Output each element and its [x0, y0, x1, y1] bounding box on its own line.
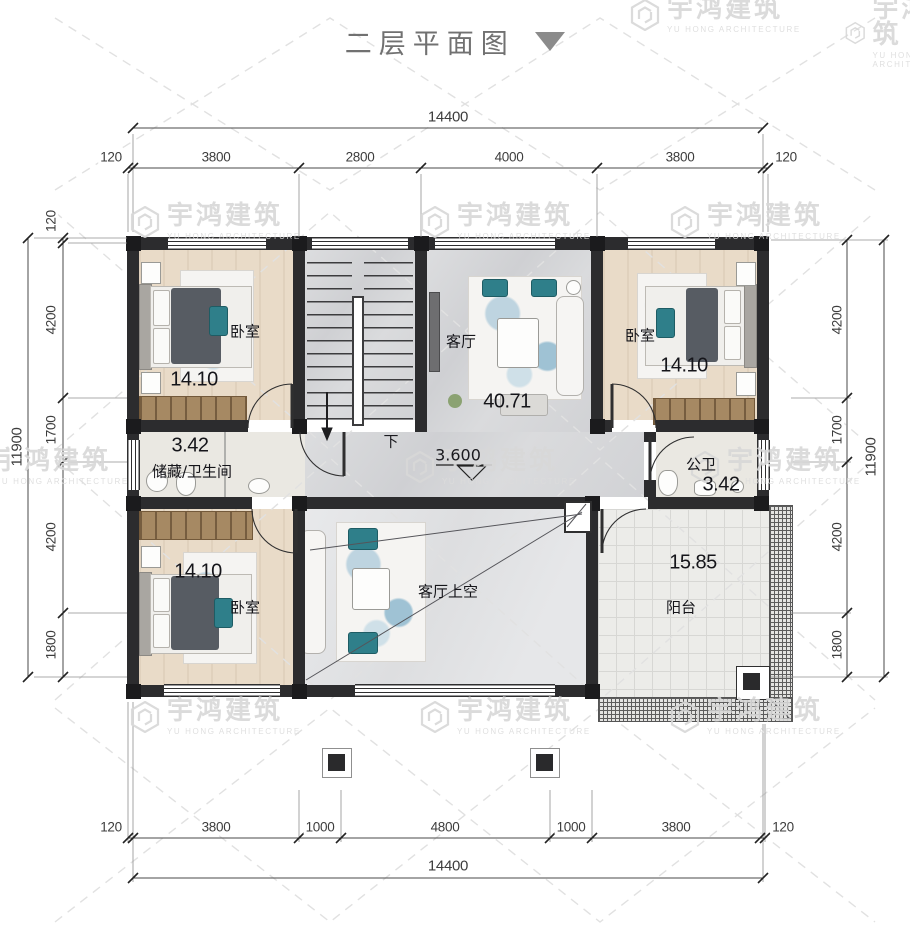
- yuhong-logo-icon: [130, 206, 160, 238]
- wall: [293, 237, 305, 432]
- balcony-railing-right: [769, 505, 793, 722]
- sink: [248, 478, 270, 494]
- wall: [757, 237, 769, 440]
- yuhong-logo-icon: [130, 701, 160, 733]
- column: [292, 496, 307, 511]
- column: [292, 419, 307, 434]
- nightstand: [141, 546, 161, 568]
- column: [292, 684, 307, 699]
- void-armchair: [348, 528, 378, 550]
- wall: [127, 237, 139, 440]
- dim-left-2: 1700: [44, 414, 58, 447]
- dim-top-3: 4000: [493, 150, 526, 164]
- floor-plan-page: 二层平面图: [0, 0, 910, 929]
- nightstand: [141, 372, 161, 394]
- sofa: [556, 296, 584, 396]
- dim-bottom-0: 120: [98, 820, 124, 834]
- wall: [415, 250, 427, 420]
- room-label-storage-bath: 储藏/卫生间: [152, 461, 232, 482]
- dim-right-2: 4200: [830, 521, 844, 554]
- dim-top-5: 120: [773, 150, 799, 164]
- column: [754, 419, 769, 434]
- pillow: [153, 578, 170, 612]
- dim-bottom-2: 1000: [304, 820, 337, 834]
- bed-blanket: [686, 288, 718, 362]
- yuhong-logo-icon: [420, 701, 450, 733]
- stair-treads-right: [364, 262, 413, 422]
- window: [164, 684, 280, 697]
- dim-bottom-6: 120: [770, 820, 796, 834]
- floor-level-label: 3.600: [435, 446, 481, 465]
- page-title: 二层平面图: [345, 22, 515, 61]
- window: [628, 237, 715, 250]
- pillow: [724, 290, 741, 324]
- toilet: [658, 470, 678, 496]
- stair-stringer: [352, 296, 364, 426]
- watermark-logo: 宇鸿建筑YU HONG ARCHITECTURE: [420, 698, 591, 736]
- window: [127, 440, 140, 490]
- chevron-down-icon[interactable]: [535, 32, 565, 51]
- column: [126, 236, 141, 251]
- dim-right-0: 4200: [830, 304, 844, 337]
- room-area-bedroom-tl: 14.10: [170, 369, 218, 392]
- wall: [127, 490, 139, 697]
- coffee-table: [497, 318, 539, 368]
- chair-teal: [209, 306, 228, 336]
- room-area-living: 40.71: [483, 391, 531, 414]
- room-label-void: 客厅上空: [418, 581, 478, 602]
- room-label-balcony: 阳台: [666, 597, 696, 618]
- dim-bottom-overall: 14400: [426, 859, 470, 874]
- wall: [644, 480, 656, 497]
- dim-top-1: 3800: [200, 150, 233, 164]
- wall: [591, 250, 603, 420]
- dim-left-0: 120: [44, 208, 58, 234]
- pillow: [153, 614, 170, 648]
- dim-left-4: 1800: [44, 629, 58, 662]
- dim-right-overall: 11900: [864, 435, 879, 478]
- wall: [127, 420, 248, 432]
- dim-bottom-4: 1000: [555, 820, 588, 834]
- dim-top-0: 120: [98, 150, 124, 164]
- tv-console: [429, 292, 440, 372]
- porch-column: [322, 748, 352, 778]
- room-area-storage-bath: 3.42: [172, 435, 209, 458]
- floor-corridor: [305, 432, 644, 497]
- nightstand: [736, 262, 756, 286]
- column: [754, 236, 769, 251]
- yuhong-logo-icon: [420, 206, 450, 238]
- nightstand: [141, 262, 161, 284]
- pillow: [153, 290, 170, 326]
- balcony-railing-bottom: [598, 697, 793, 722]
- dim-top-overall: 14400: [426, 110, 470, 125]
- bed-blanket: [171, 576, 219, 650]
- dim-left-1: 4200: [44, 304, 58, 337]
- balcony-column: [736, 666, 770, 700]
- window: [312, 237, 408, 250]
- watermark-logo: 宇鸿建筑YU HONG ARCHITECTURE: [130, 698, 301, 736]
- nightstand: [736, 372, 756, 396]
- void-corner-opening: [564, 501, 592, 533]
- stair-down-label: 下: [383, 431, 398, 452]
- yuhong-logo-icon: [670, 206, 700, 238]
- window: [757, 440, 770, 490]
- room-area-bedroom-bl: 14.10: [174, 561, 222, 584]
- wall: [296, 497, 600, 509]
- column: [292, 236, 307, 251]
- wardrobe: [139, 396, 247, 423]
- column: [585, 684, 600, 699]
- column: [754, 496, 769, 511]
- watermark-logo: 宇鸿建筑YU HONG ARCHITECTURE: [130, 203, 301, 241]
- watermark-logo: 宇鸿建筑YU HONG ARCHITECTURE: [420, 203, 591, 241]
- room-label-living: 客厅: [446, 331, 476, 352]
- column: [126, 419, 141, 434]
- column: [590, 419, 605, 434]
- wall: [648, 497, 769, 509]
- wardrobe: [139, 511, 253, 540]
- armchair: [482, 279, 508, 297]
- room-area-balcony: 15.85: [669, 552, 717, 575]
- wall: [293, 509, 305, 691]
- plant: [448, 394, 462, 408]
- wall: [644, 432, 656, 442]
- dim-right-1: 1700: [830, 414, 844, 447]
- stair-treads-left: [307, 262, 352, 422]
- column: [126, 496, 141, 511]
- dim-bottom-1: 3800: [200, 820, 233, 834]
- room-area-bedroom-tr: 14.10: [660, 355, 708, 378]
- wall: [415, 420, 427, 432]
- porch-column: [530, 748, 560, 778]
- round-table: [566, 280, 581, 295]
- chair-teal: [656, 308, 675, 338]
- dim-bottom-3: 4800: [429, 820, 462, 834]
- window: [355, 684, 555, 697]
- room-label-bedroom-tr: 卧室: [625, 325, 655, 346]
- dim-right-3: 1800: [830, 629, 844, 662]
- column: [414, 236, 429, 251]
- room-area-public-bath: 3.42: [703, 474, 740, 497]
- room-label-bedroom-bl: 卧室: [230, 597, 260, 618]
- bed-headboard: [744, 284, 757, 368]
- dim-top-4: 3800: [664, 150, 697, 164]
- column: [126, 684, 141, 699]
- dim-left-3: 4200: [44, 521, 58, 554]
- dim-top-2: 2800: [344, 150, 377, 164]
- room-label-public-bath: 公卫: [686, 454, 716, 475]
- column: [590, 236, 605, 251]
- pillow: [724, 326, 741, 360]
- dim-bottom-5: 3800: [660, 820, 693, 834]
- drawing-title-row[interactable]: 二层平面图: [0, 22, 910, 61]
- void-armchair: [348, 632, 378, 654]
- dim-left-overall: 11900: [10, 425, 25, 468]
- pillow: [153, 328, 170, 364]
- armchair: [531, 279, 557, 297]
- wall: [586, 509, 598, 691]
- room-label-bedroom-tl: 卧室: [230, 321, 260, 342]
- wall: [127, 497, 252, 509]
- wall: [656, 420, 769, 432]
- window: [435, 237, 555, 250]
- window: [168, 237, 266, 250]
- void-coffee-table: [352, 568, 390, 610]
